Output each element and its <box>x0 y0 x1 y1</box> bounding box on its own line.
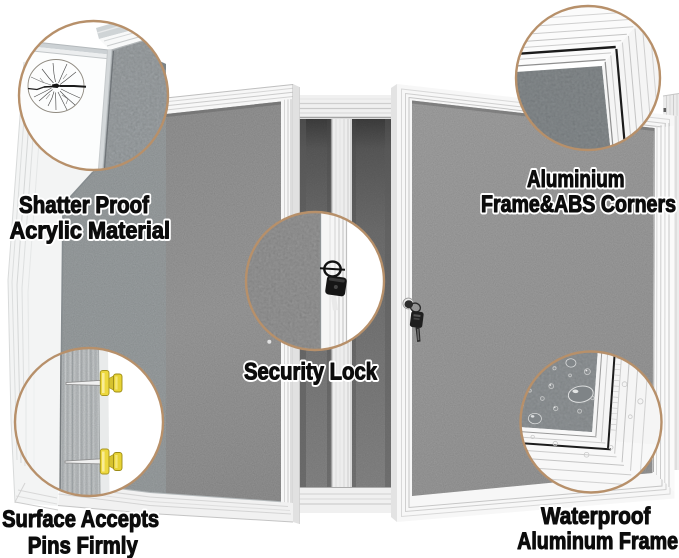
svg-text:Waterproof: Waterproof <box>541 504 651 530</box>
svg-text:Shatter Proof: Shatter Proof <box>19 193 149 219</box>
svg-text:Security Lock: Security Lock <box>244 360 378 386</box>
svg-text:Pins Firmly: Pins Firmly <box>28 533 138 558</box>
svg-text:Frame&ABS Corners: Frame&ABS Corners <box>481 192 676 218</box>
svg-text:Surface Accepts: Surface Accepts <box>2 507 159 533</box>
svg-text:Aluminum Frame: Aluminum Frame <box>517 529 678 555</box>
svg-text:Acrylic Material: Acrylic Material <box>10 219 170 245</box>
svg-text:Aluminium: Aluminium <box>527 167 625 193</box>
